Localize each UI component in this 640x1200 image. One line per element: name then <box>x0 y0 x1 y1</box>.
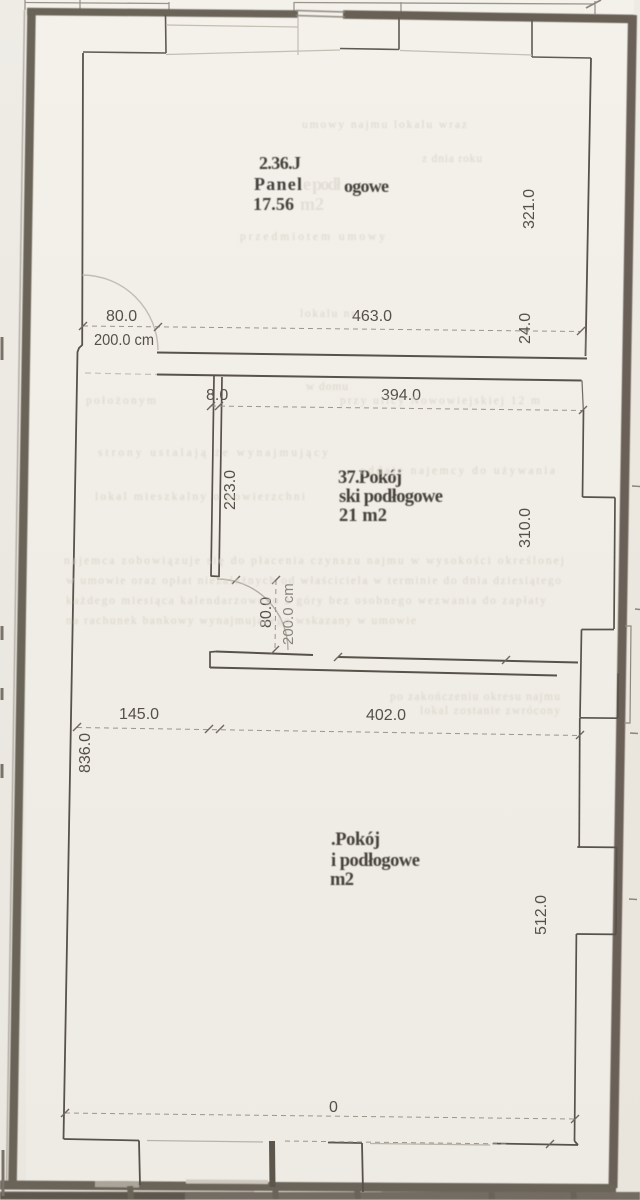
svg-text:lokal mieszkalny o powierzchni: lokal mieszkalny o powierzchni <box>95 491 305 503</box>
svg-text:17.56: 17.56 <box>253 194 294 214</box>
svg-text:najemca zobowiązuje się do pła: najemca zobowiązuje się do płacenia czyn… <box>64 555 564 567</box>
svg-text:lokal zostanie zwrócony: lokal zostanie zwrócony <box>420 705 560 717</box>
svg-text:Panel: Panel <box>254 174 302 194</box>
svg-text:321.0: 321.0 <box>521 189 538 229</box>
svg-text:na rachunek bankowy wynajmując: na rachunek bankowy wynajmującego wskaza… <box>66 615 416 627</box>
svg-text:223.0: 223.0 <box>222 470 239 510</box>
svg-text:ski podłogowe: ski podłogowe <box>339 487 443 507</box>
svg-text:.Pokój: .Pokój <box>331 830 380 850</box>
svg-text:463.0: 463.0 <box>352 308 392 325</box>
svg-text:24.0: 24.0 <box>517 313 534 344</box>
svg-text:ogowe: ogowe <box>344 176 389 196</box>
svg-text:310.0: 310.0 <box>517 508 534 548</box>
svg-text:21 m2: 21 m2 <box>339 506 387 526</box>
svg-text:m2: m2 <box>330 870 354 890</box>
svg-text:w domu: w domu <box>306 381 348 393</box>
svg-text:80.0: 80.0 <box>106 308 137 325</box>
svg-text:512.0: 512.0 <box>533 895 550 935</box>
svg-text:145.0: 145.0 <box>119 706 159 723</box>
svg-text:przy ulicy Nowowiejskiej 12 m: przy ulicy Nowowiejskiej 12 m <box>340 395 540 407</box>
svg-text:m2: m2 <box>300 194 324 214</box>
svg-text:0: 0 <box>329 1099 338 1116</box>
svg-text:i podłogowe: i podłogowe <box>331 851 420 871</box>
svg-text:lokalu nr: lokalu nr <box>300 308 355 320</box>
svg-text:każdego miesiąca kalendarzoweg: każdego miesiąca kalendarzowego z góry b… <box>66 595 546 607</box>
svg-text:z dnia roku: z dnia roku <box>422 153 482 165</box>
svg-text:e podł: e podł <box>303 174 341 194</box>
svg-text:8.0: 8.0 <box>206 387 228 404</box>
svg-text:200.0 cm: 200.0 cm <box>94 332 154 349</box>
svg-text:836.0: 836.0 <box>77 733 94 773</box>
svg-text:2.36.J: 2.36.J <box>259 153 301 173</box>
svg-text:po zakończeniu okresu najmu: po zakończeniu okresu najmu <box>390 691 560 703</box>
svg-text:402.0: 402.0 <box>366 707 406 724</box>
